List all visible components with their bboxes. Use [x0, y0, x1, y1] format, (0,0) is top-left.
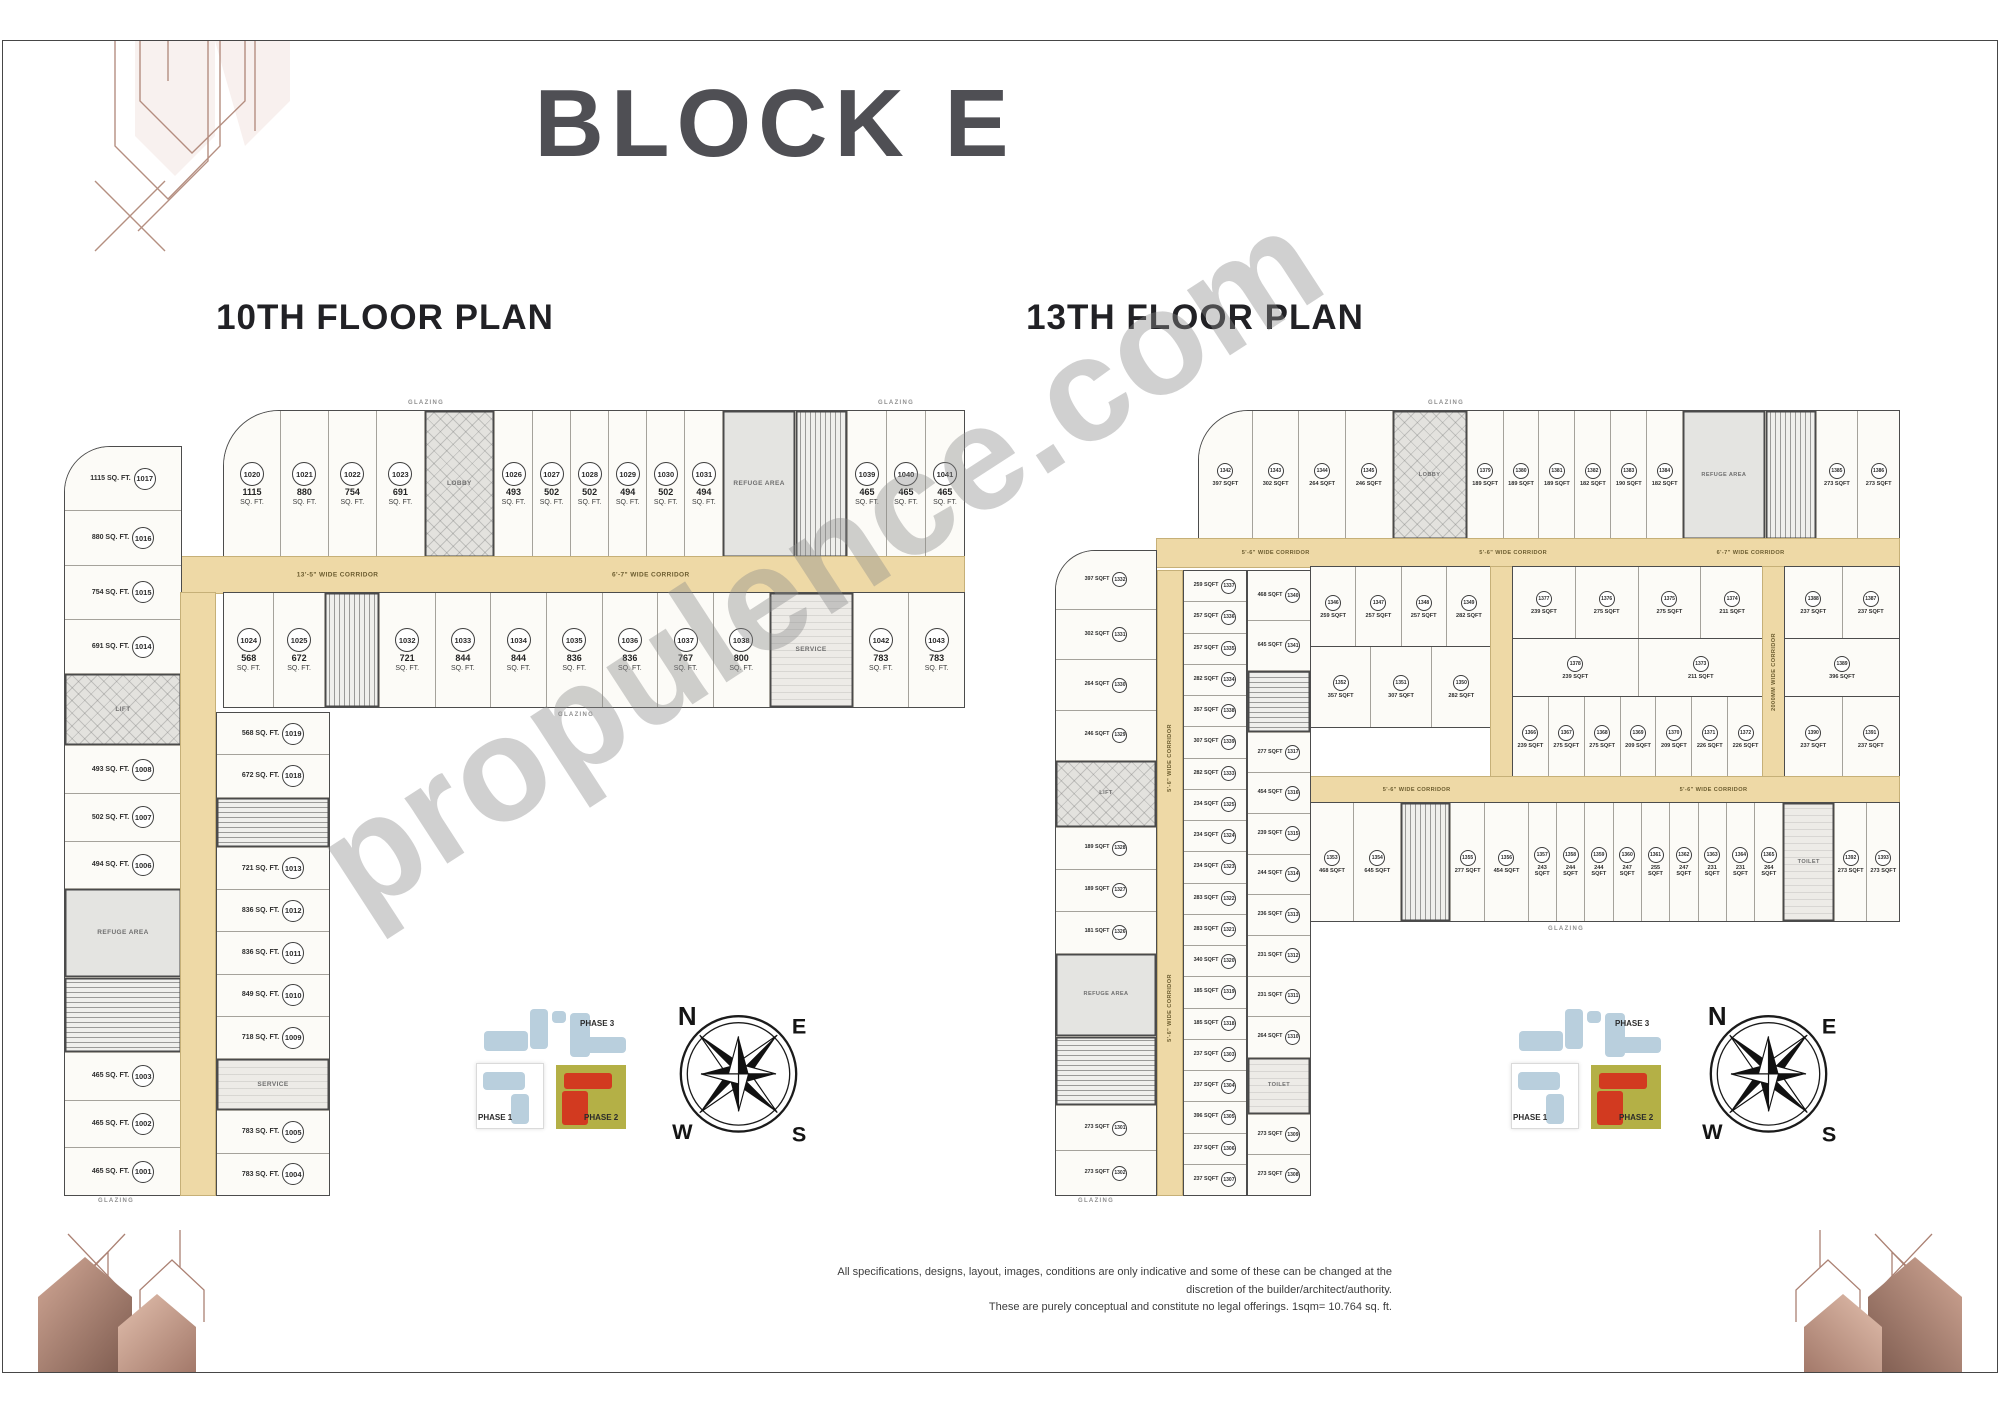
unit-sqft: 182 SQFT [1576, 481, 1609, 487]
unit-sqft: 275 SQFT [1586, 743, 1619, 749]
phase-building-shape [484, 1031, 528, 1051]
unit-1375: 1375275 SQFT [1638, 567, 1701, 639]
unit-sqft: 234 SQFT [1194, 833, 1219, 839]
unit-1377: 1377239 SQFT [1513, 567, 1575, 639]
unit-sqft-value: 754 [345, 488, 360, 497]
unit-number-badge: 1312 [1285, 948, 1300, 963]
unit-sqft: 396 SQFT [1786, 674, 1898, 680]
unit-1325: 234 SQFT1325 [1184, 789, 1246, 820]
unit-1033: 1033844SQ. FT. [435, 593, 491, 707]
unit-sqft: 259 SQFT [1312, 613, 1354, 619]
unit-sqft: 645 SQFT [1355, 868, 1399, 874]
unit-sqft: 754 SQ. FT. [92, 589, 129, 597]
unit-1319: 185 SQFT1319 [1184, 976, 1246, 1007]
unit-1365: 1365264 SQFT [1754, 803, 1782, 921]
plan-strip: 397 SQFT1332302 SQFT1331264 SQFT1330246 … [1055, 550, 1157, 1196]
unit-1013: 721 SQ. FT.1013 [217, 847, 329, 889]
plan-strip: 10201115SQ. FT.1021880SQ. FT.1022754SQ. … [223, 410, 965, 558]
unit-sqft-value: 502 [544, 488, 559, 497]
unit-sqft-suffix: SQ. FT. [894, 499, 918, 506]
unit-1388: 1388237 SQFT [1785, 567, 1842, 639]
unit-sqft: 257 SQFT [1194, 646, 1219, 652]
phase-building-shape [1615, 1037, 1661, 1053]
unit-1357: 1357243 SQFT [1528, 803, 1556, 921]
unit-number-badge: 1001 [132, 1161, 154, 1183]
phase3-label: PHASE 3 [1615, 1019, 1649, 1028]
corridor-label: 13'-5" WIDE CORRIDOR [297, 572, 379, 579]
unit-number-badge: 1327 [1112, 883, 1127, 898]
unit-sqft-suffix: SQ. FT. [869, 665, 893, 672]
unit-number-badge: 1360 [1619, 847, 1635, 863]
corridor-label: 5'-6" WIDE CORRIDOR [1167, 974, 1173, 1042]
disclaimer-line-2: These are purely conceptual and constitu… [820, 1299, 1392, 1317]
unit-sqft: 277 SQFT [1452, 868, 1484, 874]
glazing-label: GLAZING [558, 712, 594, 718]
unit-sqft-value: 494 [696, 488, 711, 497]
unit-number-badge: 1348 [1416, 595, 1432, 611]
unit-sqft: 340 SQFT [1194, 958, 1219, 964]
unit-number-badge: 1013 [282, 857, 304, 879]
unit-sqft: 239 SQFT [1514, 674, 1637, 680]
unit-1006: 494 SQ. FT.1006 [65, 841, 181, 889]
unit-1336: 257 SQFT1336 [1184, 601, 1246, 632]
unit-number-badge: 1384 [1657, 463, 1673, 479]
unit-1366: 1366239 SQFT [1513, 697, 1548, 777]
unit-number-badge: 1377 [1536, 591, 1552, 607]
brochure-page: BLOCK E 10TH FLOOR PLAN 13TH FLOOR PLAN … [0, 0, 2000, 1415]
unit-1342: 1342397 SQFT [1199, 411, 1252, 539]
unit-1310: 264 SQFT1310 [1248, 1016, 1310, 1057]
corner-decoration-bottom-left [30, 1222, 240, 1372]
unit-1391: 1391237 SQFT [1842, 697, 1900, 777]
unit-number-badge: 1008 [132, 759, 154, 781]
unit-sqft: 264 SQFT [1085, 682, 1110, 688]
unit-sqft: 246 SQFT [1347, 481, 1391, 487]
unit-1018: 672 SQ. FT.1018 [217, 754, 329, 796]
unit-number-badge: 1020 [240, 462, 264, 486]
unit-sqft: 718 SQ. FT. [242, 1034, 279, 1042]
unit-number-badge: 1380 [1513, 463, 1529, 479]
unit-sqft-value: 465 [859, 488, 874, 497]
unit-1330: 264 SQFT1330 [1056, 659, 1156, 709]
lift-core: LIFT [65, 673, 181, 745]
unit-1014: 691 SQ. FT.1014 [65, 619, 181, 673]
unit-number-badge: 1382 [1585, 463, 1601, 479]
phase-building-shape [580, 1037, 626, 1053]
unit-1302: 273 SQFT1302 [1056, 1150, 1156, 1195]
corridor-label: 2000MM WIDE CORRIDOR [1771, 633, 1777, 711]
unit-number-badge: 1340 [1285, 588, 1300, 603]
unit-number-badge: 1354 [1369, 850, 1385, 866]
unit-1349: 1349282 SQFT [1446, 567, 1491, 647]
unit-sqft: 302 SQFT [1254, 481, 1298, 487]
unit-sqft: 189 SQFT [1505, 481, 1538, 487]
unit-1322: 283 SQFT1322 [1184, 883, 1246, 914]
unit-1367: 1367275 SQFT [1548, 697, 1584, 777]
unit-1024: 1024568SQ. FT. [224, 593, 273, 707]
unit-sqft-value: 502 [582, 488, 597, 497]
corner-decoration-top-left [40, 41, 420, 256]
unit-sqft-suffix: SQ. FT. [451, 665, 475, 672]
unit-sqft: 237 SQFT [1844, 743, 1899, 749]
compass-north-label: N [1708, 1001, 1727, 1031]
unit-1011: 836 SQ. FT.1011 [217, 931, 329, 973]
plan-strip: 1346259 SQFT1347257 SQFT1348257 SQFT1349… [1310, 566, 1492, 648]
unit-number-badge: 1301 [1112, 1121, 1127, 1136]
stair-core [1056, 1036, 1156, 1105]
unit-1030: 1030502SQ. FT. [646, 411, 684, 557]
unit-1343: 1343302 SQFT [1252, 411, 1299, 539]
unit-number-badge: 1023 [388, 462, 412, 486]
unit-sqft-suffix: SQ. FT. [618, 665, 642, 672]
unit-1308: 273 SQFT1308 [1248, 1154, 1310, 1195]
unit-number-badge: 1367 [1558, 725, 1574, 741]
unit-number-badge: 1349 [1461, 595, 1477, 611]
unit-sqft: 244 SQFT [1558, 865, 1583, 877]
unit-number-badge: 1371 [1702, 725, 1718, 741]
unit-1005: 783 SQ. FT.1005 [217, 1110, 329, 1152]
unit-number-badge: 1387 [1863, 591, 1879, 607]
unit-number-badge: 1006 [132, 854, 154, 876]
corridor: 5'-6" WIDE CORRIDOR5'-6" WIDE CORRIDOR6'… [1156, 538, 1900, 568]
unit-sqft: 721 SQ. FT. [242, 865, 279, 873]
unit-1034: 1034844SQ. FT. [490, 593, 546, 707]
unit-sqft: 465 SQ. FT. [92, 1168, 129, 1176]
unit-sqft-suffix: SQ. FT. [287, 665, 311, 672]
unit-number-badge: 1313 [1285, 908, 1300, 923]
phase-building-shape [1519, 1031, 1563, 1051]
unit-sqft: 465 SQ. FT. [92, 1072, 129, 1080]
unit-sqft: 226 SQFT [1693, 743, 1726, 749]
unit-sqft: 275 SQFT [1550, 743, 1583, 749]
unit-1374: 1374211 SQFT [1700, 567, 1763, 639]
unit-1305: 396 SQFT1305 [1184, 1101, 1246, 1132]
unit-number-badge: 1359 [1591, 847, 1607, 863]
unit-sqft: 264 SQFT [1300, 481, 1344, 487]
corridor-label: 5'-6" WIDE CORRIDOR [1680, 787, 1748, 793]
stair-core [217, 797, 329, 847]
unit-sqft: 493 SQ. FT. [92, 766, 129, 774]
unit-1017: 1115 SQ. FT.1017 [65, 447, 181, 510]
unit-1311: 231 SQFT1311 [1248, 976, 1310, 1017]
corridor-label: 5'-6" WIDE CORRIDOR [1383, 787, 1451, 793]
unit-sqft-value: 844 [511, 654, 526, 663]
unit-number-badge: 1043 [925, 628, 949, 652]
unit-1332: 397 SQFT1332 [1056, 551, 1156, 609]
unit-sqft: 282 SQFT [1433, 693, 1490, 699]
unit-1040: 1040465SQ. FT. [886, 411, 925, 557]
phase-building-shape [483, 1072, 525, 1090]
unit-number-badge: 1016 [132, 527, 154, 549]
unit-sqft: 226 SQFT [1729, 743, 1762, 749]
unit-number-badge: 1378 [1567, 656, 1583, 672]
phase2-building-shape [1599, 1073, 1647, 1089]
unit-sqft: 783 SQ. FT. [242, 1128, 279, 1136]
unit-sqft: 189 SQFT [1085, 845, 1110, 851]
stair-core [65, 977, 181, 1052]
unit-1027: 1027502SQ. FT. [532, 411, 570, 557]
unit-sqft: 209 SQFT [1622, 743, 1655, 749]
unit-1313: 236 SQFT1313 [1248, 894, 1310, 935]
unit-number-badge: 1326 [1112, 925, 1127, 940]
unit-number-badge: 1321 [1221, 922, 1236, 937]
unit-number-badge: 1005 [282, 1121, 304, 1143]
unit-1317: 277 SQFT1317 [1248, 732, 1310, 773]
compass-rose-left: N E W S [666, 996, 811, 1146]
unit-sqft-value: 844 [455, 654, 470, 663]
corridor: 2000MM WIDE CORRIDOR [1762, 566, 1786, 778]
unit-1304: 237 SQFT1304 [1184, 1070, 1246, 1101]
unit-sqft-value: 493 [506, 488, 521, 497]
unit-sqft: 239 SQFT [1514, 743, 1547, 749]
glazing-label: GLAZING [1548, 926, 1584, 932]
unit-1019: 568 SQ. FT.1019 [217, 713, 329, 754]
unit-sqft: 234 SQFT [1194, 864, 1219, 870]
unit-sqft: 231 SQFT [1700, 865, 1725, 877]
unit-1340: 468 SQFT1340 [1248, 571, 1310, 620]
unit-sqft: 246 SQFT [1085, 732, 1110, 738]
glazing-label: GLAZING [98, 1198, 134, 1204]
phase2-label: PHASE 2 [584, 1113, 618, 1122]
corridor: 5'-6" WIDE CORRIDOR5'-6" WIDE CORRIDOR [1157, 570, 1183, 1196]
unit-sqft: 237 SQFT [1844, 609, 1899, 615]
unit-sqft-suffix: SQ. FT. [562, 665, 586, 672]
unit-number-badge: 1376 [1599, 591, 1615, 607]
unit-sqft: 273 SQFT [1085, 1170, 1110, 1176]
stair-core [324, 593, 379, 707]
unit-1392: 1392273 SQFT [1834, 803, 1867, 921]
unit-1038: 1038800SQ. FT. [713, 593, 769, 707]
unit-1338: 357 SQFT1338 [1184, 695, 1246, 726]
unit-number-badge: 1385 [1829, 463, 1845, 479]
unit-number-badge: 1307 [1221, 1172, 1236, 1187]
unit-1347: 1347257 SQFT [1355, 567, 1400, 647]
unit-1364: 1364231 SQFT [1726, 803, 1754, 921]
page-title: BLOCK E [275, 74, 1275, 175]
unit-1035: 1035836SQ. FT. [546, 593, 602, 707]
unit-sqft: 282 SQFT [1448, 613, 1490, 619]
unit-number-badge: 1344 [1314, 463, 1330, 479]
unit-number-badge: 1389 [1834, 656, 1850, 672]
compass-rose-right: N E W S [1696, 996, 1841, 1146]
unit-number-badge: 1357 [1534, 847, 1550, 863]
unit-sqft: 244 SQFT [1258, 871, 1283, 877]
unit-sqft: 189 SQFT [1469, 481, 1502, 487]
unit-1333: 282 SQFT1333 [1184, 758, 1246, 789]
unit-1312: 231 SQFT1312 [1248, 935, 1310, 976]
unit-sqft: 273 SQFT [1258, 1172, 1283, 1178]
unit-number-badge: 1358 [1563, 847, 1579, 863]
unit-number-badge: 1372 [1738, 725, 1754, 741]
unit-number-badge: 1021 [292, 462, 316, 486]
unit-sqft-value: 767 [678, 654, 693, 663]
unit-number-badge: 1341 [1285, 638, 1300, 653]
unit-sqft-suffix: SQ. FT. [578, 499, 602, 506]
unit-number-badge: 1390 [1805, 725, 1821, 741]
unit-sqft: 181 SQFT [1085, 929, 1110, 935]
unit-number-badge: 1322 [1221, 891, 1236, 906]
unit-number-badge: 1332 [1112, 572, 1127, 587]
unit-number-badge: 1347 [1370, 595, 1386, 611]
unit-sqft: 691 SQ. FT. [92, 643, 129, 651]
unit-number-badge: 1319 [1221, 985, 1236, 1000]
phase-building-shape [530, 1009, 548, 1049]
unit-sqft-suffix: SQ. FT. [925, 665, 949, 672]
unit-number-badge: 1019 [282, 723, 304, 745]
unit-sqft: 185 SQFT [1194, 989, 1219, 995]
unit-sqft-value: 880 [297, 488, 312, 497]
unit-sqft: 264 SQFT [1756, 865, 1781, 877]
unit-sqft-value: 783 [873, 654, 888, 663]
unit-number-badge: 1041 [933, 462, 957, 486]
unit-1009: 718 SQ. FT.1009 [217, 1016, 329, 1058]
unit-sqft: 209 SQFT [1657, 743, 1690, 749]
unit-1316: 454 SQFT1316 [1248, 772, 1310, 813]
unit-number-badge: 1361 [1648, 847, 1664, 863]
unit-number-badge: 1333 [1221, 766, 1236, 781]
unit-sqft: 468 SQFT [1258, 593, 1283, 599]
unit-sqft: 454 SQFT [1486, 868, 1526, 874]
unit-number-badge: 1309 [1285, 1127, 1300, 1142]
unit-number-badge: 1325 [1221, 797, 1236, 812]
plan-strip: 568 SQ. FT.1019672 SQ. FT.1018721 SQ. FT… [216, 712, 330, 1196]
plan-strip: 1388237 SQFT1387237 SQFT [1784, 566, 1900, 640]
unit-number-badge: 1015 [132, 581, 154, 603]
unit-sqft: 273 SQFT [1258, 1132, 1283, 1138]
unit-number-badge: 1032 [395, 628, 419, 652]
corridor: 13'-5" WIDE CORRIDOR6'-7" WIDE CORRIDOR [180, 556, 965, 594]
unit-1314: 244 SQFT1314 [1248, 854, 1310, 895]
floor-plan-10-heading: 10TH FLOOR PLAN [175, 298, 595, 338]
unit-sqft: 211 SQFT [1640, 674, 1763, 680]
unit-sqft: 239 SQFT [1514, 609, 1574, 615]
unit-1386: 1386273 SQFT [1857, 411, 1899, 539]
phase2-label: PHASE 2 [1619, 1113, 1653, 1122]
unit-1370: 1370209 SQFT [1655, 697, 1691, 777]
unit-number-badge: 1025 [287, 628, 311, 652]
unit-number-badge: 1324 [1221, 829, 1236, 844]
phase2-building-shape [564, 1073, 612, 1089]
lift-core: LOBBY [424, 411, 494, 557]
unit-1354: 1354645 SQFT [1353, 803, 1400, 921]
unit-1346: 1346259 SQFT [1311, 567, 1355, 647]
unit-sqft-suffix: SQ. FT. [240, 499, 264, 506]
plan-strip: 259 SQFT1337257 SQFT1336257 SQFT1335282 … [1183, 570, 1247, 1196]
unit-sqft-suffix: SQ. FT. [341, 499, 365, 506]
unit-1020: 10201115SQ. FT. [224, 411, 280, 557]
unit-number-badge: 1007 [132, 806, 154, 828]
unit-sqft: 247 SQFT [1671, 865, 1696, 877]
unit-number-badge: 1002 [132, 1113, 154, 1135]
unit-sqft: 237 SQFT [1786, 743, 1841, 749]
unit-number-badge: 1374 [1724, 591, 1740, 607]
unit-1309: 273 SQFT1309 [1248, 1114, 1310, 1155]
unit-number-badge: 1330 [1112, 678, 1127, 693]
plan-strip: 1378239 SQFT1373211 SQFT [1512, 638, 1764, 698]
unit-sqft-value: 465 [937, 488, 952, 497]
unit-sqft-suffix: SQ. FT. [507, 665, 531, 672]
unit-1393: 1393273 SQFT [1866, 803, 1899, 921]
unit-1387: 1387237 SQFT [1842, 567, 1900, 639]
unit-sqft: 255 SQFT [1643, 865, 1668, 877]
unit-1356: 1356454 SQFT [1484, 803, 1527, 921]
unit-sqft: 397 SQFT [1200, 481, 1251, 487]
unit-sqft-value: 721 [400, 654, 415, 663]
stair-core [1248, 670, 1310, 731]
phase-building-shape [1565, 1009, 1583, 1049]
unit-number-badge: 1353 [1324, 850, 1340, 866]
phase-key-map-left: PHASE 3PHASE 1PHASE 2 [468, 1005, 633, 1135]
unit-1041: 1041465SQ. FT. [925, 411, 964, 557]
unit-1012: 836 SQ. FT.1012 [217, 889, 329, 931]
unit-1023: 1023691SQ. FT. [376, 411, 424, 557]
unit-sqft: 231 SQFT [1728, 865, 1753, 877]
unit-1344: 1344264 SQFT [1298, 411, 1345, 539]
unit-number-badge: 1331 [1112, 627, 1127, 642]
unit-sqft: 307 SQFT [1372, 693, 1429, 699]
unit-sqft: 234 SQFT [1194, 802, 1219, 808]
unit-1362: 1362247 SQFT [1669, 803, 1697, 921]
unit-number-badge: 1036 [618, 628, 642, 652]
unit-1303: 237 SQFT1303 [1184, 1039, 1246, 1070]
compass-west-label: W [672, 1119, 693, 1144]
unit-1015: 754 SQ. FT.1015 [65, 565, 181, 619]
unit-1021: 1021880SQ. FT. [280, 411, 328, 557]
unit-1371: 1371226 SQFT [1691, 697, 1727, 777]
unit-number-badge: 1306 [1221, 1141, 1236, 1156]
unit-number-badge: 1009 [282, 1027, 304, 1049]
stair-core [795, 411, 847, 557]
plan-strip: 1389396 SQFT [1784, 638, 1900, 698]
disclaimer-line-1: All specifications, designs, layout, ima… [820, 1264, 1392, 1299]
unit-number-badge: 1320 [1221, 954, 1236, 969]
unit-number-badge: 1311 [1285, 989, 1300, 1004]
unit-number-badge: 1368 [1594, 725, 1610, 741]
plan-strip: 1390237 SQFT1391237 SQFT [1784, 696, 1900, 778]
unit-number-badge: 1365 [1761, 847, 1777, 863]
unit-sqft-suffix: SQ. FT. [729, 665, 753, 672]
corridor-label: 5'-6" WIDE CORRIDOR [1242, 550, 1310, 556]
compass-south-label: S [792, 1122, 806, 1146]
unit-1029: 1029494SQ. FT. [608, 411, 646, 557]
unit-1372: 1372226 SQFT [1727, 697, 1763, 777]
unit-sqft: 302 SQFT [1085, 632, 1110, 638]
unit-1345: 1345246 SQFT [1345, 411, 1392, 539]
unit-1339: 307 SQFT1339 [1184, 726, 1246, 757]
unit-1368: 1368275 SQFT [1584, 697, 1620, 777]
wc-core: TOILET [1782, 803, 1833, 921]
unit-number-badge: 1303 [1221, 1047, 1236, 1062]
unit-1335: 257 SQFT1335 [1184, 633, 1246, 664]
unit-number-badge: 1022 [340, 462, 364, 486]
unit-number-badge: 1362 [1676, 847, 1692, 863]
unit-1307: 237 SQFT1307 [1184, 1164, 1246, 1195]
unit-sqft: 273 SQFT [1859, 481, 1898, 487]
disclaimer: All specifications, designs, layout, ima… [820, 1264, 1392, 1317]
unit-1383: 1383190 SQFT [1610, 411, 1646, 539]
unit-sqft: 237 SQFT [1194, 1083, 1219, 1089]
unit-sqft: 836 SQ. FT. [242, 949, 279, 957]
unit-1380: 1380189 SQFT [1503, 411, 1539, 539]
unit-1350: 1350282 SQFT [1431, 647, 1491, 727]
wc-core: SERVICE [217, 1058, 329, 1110]
unit-number-badge: 1040 [894, 462, 918, 486]
unit-1321: 283 SQFT1321 [1184, 914, 1246, 945]
unit-1363: 1363231 SQFT [1698, 803, 1726, 921]
unit-sqft: 264 SQFT [1258, 1034, 1283, 1040]
unit-sqft: 231 SQFT [1258, 953, 1283, 959]
unit-1389: 1389396 SQFT [1785, 639, 1899, 697]
